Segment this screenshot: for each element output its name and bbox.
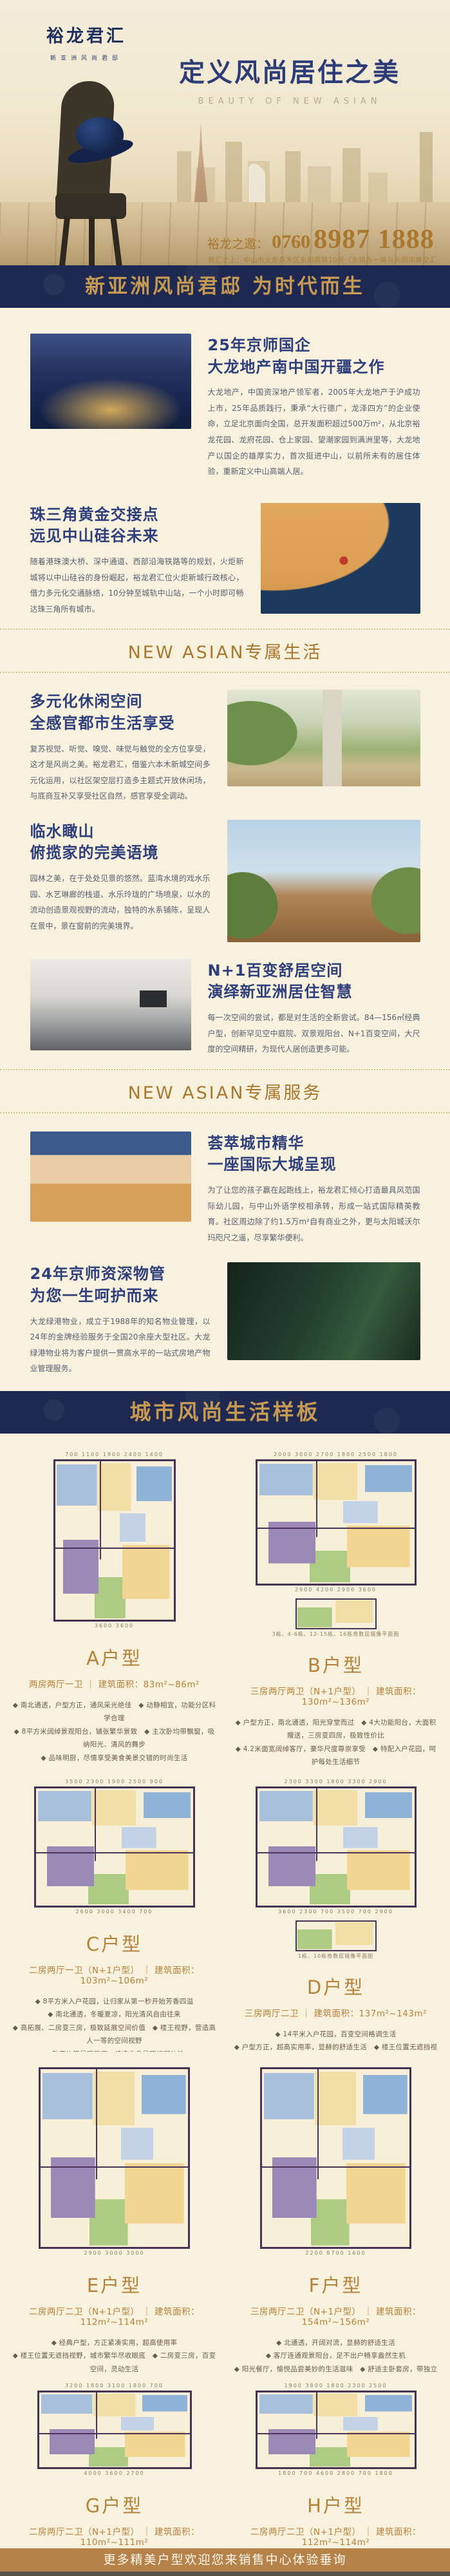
- feature-line: ◆ 南北通透，冬暖夏凉，阳光清风自由往来: [13, 2008, 216, 2021]
- floorplan-card-c: 3500 2300 1900 2500 900 2600 3000 3400 7…: [13, 1777, 216, 2052]
- hero-banner: 裕龙君汇 新亚洲风尚君邸 定义风尚居住之美 BEAUTY OF NEW ASIA…: [0, 0, 450, 265]
- photo-living-room: [30, 959, 191, 1050]
- floorplan-drawing-h: [256, 2391, 417, 2469]
- floorplans-banner-text: 城市风尚生活样板: [130, 1399, 321, 1425]
- photo-kindergarten: [30, 1132, 191, 1222]
- section-developer: 25年京师国企大龙地产南中国开疆之作 大龙地产，中国资深地产领军者，2005年大…: [30, 334, 420, 480]
- floorplan-mini-drawing: [295, 1598, 377, 1629]
- dimension-labels: [13, 2058, 216, 2067]
- dimension-labels: 2000 3000 2700 1800 2500 1800: [234, 1450, 438, 1459]
- section-text: 珠三角黄金交接点远见中山硅谷未来 随着港珠澳大桥、深中通道、西部沿海铁路等的规划…: [30, 503, 244, 618]
- section-body: 大龙绿港物业，成立于1988年的知名物业管理，以24年的金牌经验服务于全国20余…: [30, 1314, 211, 1377]
- slogan-text: 新亚洲风尚君邸 为时代而生: [85, 275, 365, 298]
- floorplan-mini-drawing: [295, 1920, 377, 1951]
- floorplan-drawing-c: [34, 1786, 195, 1908]
- phone-label: 裕龙之邀：: [207, 237, 268, 251]
- feature-line: ◆ 8平方米阔绰景观阳台，铺张繁华景致 ◆ 主次卧均带飘窗，吸纳阳光、清风的舞步: [13, 1725, 216, 1752]
- floorplan-card-a: 700 1100 1900 2400 1400 3600 3600 A户型 两房…: [13, 1450, 216, 1768]
- dimension-labels: 3200 1800 3100 1800 700: [13, 2382, 216, 2391]
- section-landscape: 临水瞰山俯揽家的完美语境 园林之美，在于处处见景的悠然。蓝湾水境的戏水乐园、水艺…: [30, 820, 420, 942]
- floorplan-card-d: 2300 3300 1800 3300 2900 3600 2300 700 3…: [234, 1777, 438, 2052]
- section-text: 25年京师国企大龙地产南中国开疆之作 大龙地产，中国资深地产领军者，2005年大…: [208, 334, 420, 480]
- floorplan-name: G户型: [13, 2491, 216, 2518]
- floorplan-features: ◆ 户型方正，南北通透，阳光穿堂而过 ◆ 4大功能阳台，大面积赠送，三房变四房，…: [234, 1716, 438, 1768]
- brand-logo-block: 裕龙君汇 新亚洲风尚君邸: [41, 22, 131, 62]
- divider-title: NEW ASIAN专属服务: [128, 1083, 323, 1103]
- floorplan-card-g: 3200 1800 3100 1800 700 4000 3600 2700 G…: [13, 2382, 216, 2559]
- feature-line: ◆ 户型方正，南北通透，阳光穿堂而过 ◆ 4大功能阳台，大面积赠送，三房变四房，…: [234, 1716, 438, 1743]
- feature-line: ◆ 阳光餐厅，愉悦品尝美妙的生活滋味 ◆ 舒适主卧套房，带独立卫生间、私密尊崇: [234, 2363, 438, 2374]
- floorplan-card-e: 2900 3000 3000 E户型 二房两厅二卫（N+1户型） ｜ 建筑面积：…: [13, 2058, 216, 2374]
- section-body: 园林之美，在于处处见景的悠然。蓝湾水境的戏水乐园、水艺琳廊的栈道、水乐玲珑的广场…: [30, 871, 211, 934]
- brand-logo: 裕龙君汇: [41, 22, 131, 47]
- floorplan-name: H户型: [234, 2491, 438, 2518]
- floorplan-name: C户型: [13, 1929, 216, 1956]
- section-text: 荟萃城市精华一座国际大城呈现 为了让您的孩子赢在起跑线上，裕龙君汇倾心打造最具风…: [208, 1132, 420, 1246]
- photo-butler: [227, 1262, 420, 1360]
- section-heading: 临水瞰山俯揽家的完美语境: [30, 821, 211, 864]
- feature-line: ◆ 经典户型，方正紧凑实用，超高使用率: [13, 2336, 216, 2349]
- section-body: 大龙地产，中国资深地产领军者，2005年大龙地产于沪成功上市，25年品质践行，秉…: [208, 384, 420, 480]
- floorplan-spec: 二房两厅二卫（N+1户型） ｜ 建筑面积：110m²~111m²: [13, 2524, 216, 2548]
- floorplan-name: E户型: [13, 2271, 216, 2298]
- floorplan-spec: 二房两厅二卫（N+1户型） ｜ 建筑面积：112m²~114m²: [234, 2524, 438, 2548]
- section-heading: 25年京师国企大龙地产南中国开疆之作: [208, 335, 420, 378]
- section-heading: 24年京师资深物管为您一生呵护而来: [30, 1264, 211, 1307]
- feature-line: ◆ 品味明厨，尽情享受美食美景交错的时尚生活: [13, 1752, 216, 1765]
- phone-area-code: 0760: [272, 231, 310, 252]
- section-heading: 珠三角黄金交接点远见中山硅谷未来: [30, 504, 244, 547]
- floorplan-spec: 三房两厅二卫 ｜ 建筑面积：137m²~143m²: [234, 2006, 438, 2019]
- divider-life: NEW ASIAN专属生活: [0, 629, 450, 673]
- section-heading: N+1百变舒居空间演绎新亚洲居住智慧: [208, 960, 420, 1003]
- dimension-labels: 3500 2300 1900 2500 900: [13, 1777, 216, 1786]
- floorplan-name: A户型: [13, 1643, 216, 1671]
- feature-line: ◆ 客厅连通观景阳台，足不出户畅享盎然生机: [234, 2349, 438, 2362]
- dimension-labels: 2300 3300 1800 3300 2900: [234, 1777, 438, 1786]
- feature-line: ◆ 卧室均带景观飘窗，缔造非凡景观视野体验: [13, 2048, 216, 2052]
- feature-line: ◆ 高拓展、二房变三房，极致延展空间价值 ◆ 楼王视野，营造高人一等的空间视野: [13, 2022, 216, 2048]
- section-text: N+1百变舒居空间演绎新亚洲居住智慧 每一次空间的尝试，都是对生活的全新尝试。8…: [208, 959, 420, 1057]
- plan-note: 3栋、4-6栋、12-15栋、16栋奇数层镜像平面图: [234, 1631, 438, 1638]
- divider-title: NEW ASIAN专属生活: [128, 643, 323, 663]
- page-title: 定义风尚居住之美: [155, 52, 425, 89]
- feature-line: ◆ 户型方正，超高实用率，显赫的舒适生活 ◆ 楼王位置无遮挡视野，城市繁华尽收眼…: [234, 2041, 438, 2052]
- content: 25年京师国企大龙地产南中国开疆之作 大龙地产，中国资深地产领军者，2005年大…: [0, 334, 450, 2559]
- chair-leg-art: [89, 216, 95, 265]
- floorplan-row-cd: 3500 2300 1900 2500 900 2600 3000 3400 7…: [13, 1768, 438, 2052]
- section-education: 荟萃城市精华一座国际大城呈现 为了让您的孩子赢在起跑线上，裕龙君汇倾心打造最具风…: [30, 1132, 420, 1246]
- blue-hat-art: [76, 117, 124, 152]
- floorplan-card-f: 2200 8700 1600 F户型 三房两厅二卫（N+1户型） ｜ 建筑面积：…: [234, 2058, 438, 2374]
- section-body: 每一次空间的尝试，都是对生活的全新尝试。84—156㎡经典户型，创新罕见空中庭院…: [208, 1010, 420, 1057]
- floorplan-spec: 二房两厅一卫（N+1户型） ｜ 建筑面积：103m²~106m²: [13, 1963, 216, 1986]
- section-leisure: 多元化休闲空间全感官都市生活享受 复苏视觉、听觉、嗅觉、味觉与触觉的全方位享受，…: [30, 690, 420, 804]
- divider-service: NEW ASIAN专属服务: [0, 1069, 450, 1113]
- chair-seat-art: [55, 193, 126, 219]
- floorplan-drawing-f: [260, 2067, 411, 2249]
- photo-balcony-view: [227, 820, 420, 942]
- section-heading: 荟萃城市精华一座国际大城呈现: [208, 1133, 420, 1176]
- brand-tagline: 新亚洲风尚君邸: [41, 53, 131, 62]
- footer-strip: [0, 2571, 450, 2576]
- floorplan-row-gh: 3200 1800 3100 1800 700 4000 3600 2700 G…: [13, 2374, 438, 2559]
- floorplan-card-b: 2000 3000 2700 1800 2500 1800 2900 4200 …: [234, 1450, 438, 1768]
- hero-title-block: 定义风尚居住之美 BEAUTY OF NEW ASIAN: [155, 52, 425, 106]
- slogan-banner: 新亚洲风尚君邸 为时代而生: [0, 265, 450, 308]
- property-landing-page: 裕龙君汇 新亚洲风尚君邸 定义风尚居住之美 BEAUTY OF NEW ASIA…: [0, 0, 450, 2576]
- floorplan-drawing-e: [39, 2067, 190, 2249]
- sales-phone[interactable]: 裕龙之邀： 0760 8987 1888: [207, 224, 433, 255]
- photo-city-night: [30, 334, 191, 429]
- footer-cta: 更多精美户型欢迎您来销售中心体验垂询: [0, 2548, 450, 2571]
- floorplan-spec: 三房两厅二卫（N+1户型） ｜ 建筑面积：154m²~156m²: [234, 2304, 438, 2327]
- feature-line: ◆ 8平方米入户花园，让归家从第一秒开始芳香四溢: [13, 1995, 216, 2008]
- feature-line: ◆ 北通透，开阔对流，显赫的舒适生活: [234, 2336, 438, 2349]
- section-text: 多元化休闲空间全感官都市生活享受 复苏视觉、听觉、嗅觉、味觉与触觉的全方位享受，…: [30, 690, 211, 804]
- dimension-labels: 2900 3000 3000: [13, 2249, 216, 2258]
- section-body: 为了让您的孩子赢在起跑线上，裕龙君汇倾心打造最具风范国际幼儿园，与中山外语学校相…: [208, 1182, 420, 1245]
- plan-note: 1栋、10栋奇数层镜像平面图: [234, 1953, 438, 1960]
- section-text: 24年京师资深物管为您一生呵护而来 大龙绿港物业，成立于1988年的知名物业管理…: [30, 1262, 211, 1377]
- dimension-labels: 1900 3800 1800 2300 2500: [234, 2382, 438, 2391]
- page-subtitle: BEAUTY OF NEW ASIAN: [155, 97, 425, 106]
- floorplan-row-ab: 700 1100 1900 2400 1400 3600 3600 A户型 两房…: [13, 1434, 438, 1768]
- section-heading: 多元化休闲空间全感官都市生活享受: [30, 691, 211, 734]
- section-location: 珠三角黄金交接点远见中山硅谷未来 随着港珠澳大桥、深中通道、西部沿海铁路等的规划…: [30, 503, 420, 618]
- section-space: N+1百变舒居空间演绎新亚洲居住智慧 每一次空间的尝试，都是对生活的全新尝试。8…: [30, 959, 420, 1057]
- dimension-labels: 2900 4200 2900 3600: [234, 1586, 438, 1595]
- floorplan-features: ◆ 南北通透，户型方正，通风采光绝佳 ◆ 动静相宜，功能分区科学合理 ◆ 8平方…: [13, 1699, 216, 1765]
- floorplan-drawing-a: [53, 1459, 176, 1622]
- floorplan-spec: 两房两厅一卫 ｜ 建筑面积：83m²~86m²: [13, 1677, 216, 1690]
- photo-region-map: [261, 503, 420, 614]
- floorplan-spec: 三房两厅两卫（N+1户型） ｜ 建筑面积：130m²~136m²: [234, 1684, 438, 1707]
- dimension-labels: 4000 3600 2700: [13, 2469, 216, 2478]
- floorplan-features: ◆ 北通透，开阔对流，显赫的舒适生活 ◆ 客厅连通观景阳台，足不出户畅享盎然生机…: [234, 2336, 438, 2374]
- floorplan-features: ◆ 经典户型，方正紧凑实用，超高使用率 ◆ 楼王位置无遮挡视野，城市繁华尽收眼底…: [13, 2336, 216, 2374]
- feature-line: ◆ 南北通透，户型方正，通风采光绝佳 ◆ 动静相宜，功能分区科学合理: [13, 1699, 216, 1725]
- floorplan-row-ef: 2900 3000 3000 E户型 二房两厅二卫（N+1户型） ｜ 建筑面积：…: [13, 2052, 438, 2374]
- section-property-service: 24年京师资深物管为您一生呵护而来 大龙绿港物业，成立于1988年的知名物业管理…: [30, 1262, 420, 1377]
- floorplan-name: F户型: [234, 2271, 438, 2298]
- dimension-labels: 2200 8700 1600: [234, 2249, 438, 2258]
- dimension-labels: 700 1100 1900 2400 1400: [13, 1450, 216, 1459]
- feature-line: ◆ 14平米入户花园，百变空间格调生活: [234, 2028, 438, 2041]
- section-text: 临水瞰山俯揽家的完美语境 园林之美，在于处处见景的悠然。蓝湾水境的戏水乐园、水艺…: [30, 820, 211, 934]
- dimension-labels: [234, 2058, 438, 2067]
- floorplan-features: ◆ 8平方米入户花园，让归家从第一秒开始芳香四溢 ◆ 南北通透，冬暖夏凉，阳光清…: [13, 1995, 216, 2052]
- floorplan-spec: 二房两厅二卫（N+1户型） ｜ 建筑面积：112m²~114m²: [13, 2304, 216, 2327]
- floorplan-drawing-d: [256, 1786, 417, 1908]
- address-line: 君汇之上：中山市火炬开发区东阳南路10号（东镇东一路与东阳南路交汇处）: [208, 255, 446, 265]
- feature-line: ◆ 楼王位置无遮挡视野，城市繁华尽收眼底 ◆ 二房变三房，百变空间，灵动生活: [13, 2349, 216, 2374]
- dimension-labels: 3600 2300 700 3500 700 2900: [234, 1908, 438, 1917]
- section-body: 复苏视觉、听觉、嗅觉、味觉与触觉的全方位享受，这才是风尚之美。裕龙君汇，借鉴六本…: [30, 741, 211, 804]
- floorplan-drawing-b: [256, 1459, 417, 1586]
- phone-number: 8987 1888: [314, 225, 435, 254]
- dimension-labels: 3600 3600: [13, 1622, 216, 1631]
- feature-line: ◆ 4.2米面宽阔绰客厅，豪华尺度尊崇享受 ◆ 特配入户花园，呵护每处生活细节: [234, 1743, 438, 1768]
- section-body: 随着港珠澳大桥、深中通道、西部沿海铁路等的规划，火炬新城将以中山硅谷的身份崛起，…: [30, 554, 244, 617]
- dimension-labels: 2600 3000 3400 700: [13, 1908, 216, 1917]
- floorplan-name: B户型: [234, 1651, 438, 1678]
- floorplan-card-h: 1900 3800 1800 2300 2500 1800 700 4600 2…: [234, 2382, 438, 2559]
- floorplans-banner: 城市风尚生活样板: [0, 1391, 450, 1434]
- floorplan-name: D户型: [234, 1973, 438, 2000]
- photo-garden-gym: [227, 690, 420, 786]
- floorplan-features: ◆ 14平米入户花园，百变空间格调生活 ◆ 户型方正，超高实用率，显赫的舒适生活…: [234, 2028, 438, 2052]
- dimension-labels: 1800 700 4600 2800 700 1800: [234, 2469, 438, 2478]
- floorplan-drawing-g: [37, 2391, 192, 2469]
